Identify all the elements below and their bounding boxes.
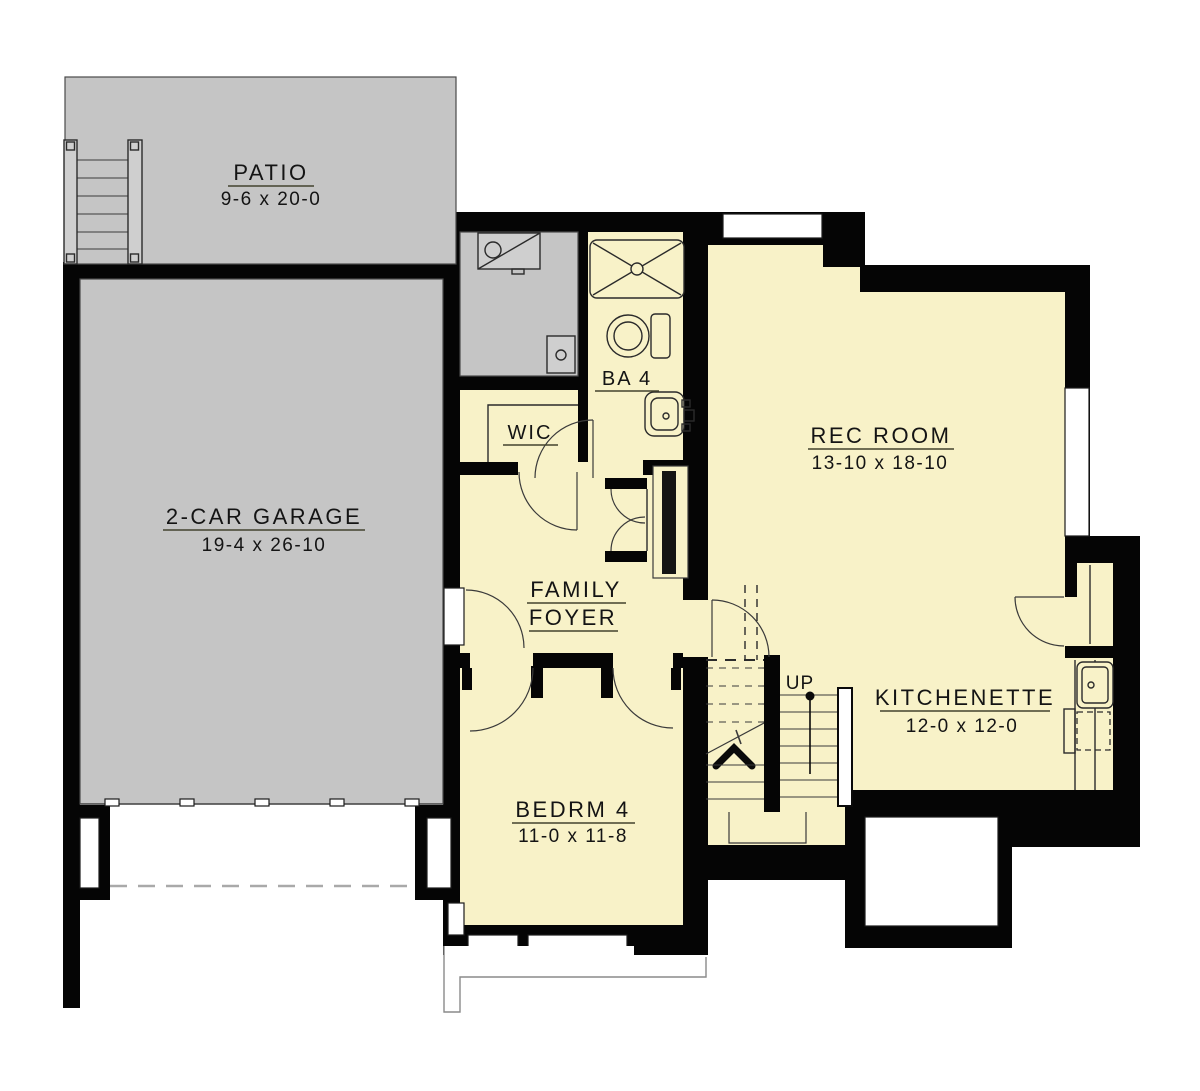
linen-closet xyxy=(647,466,688,578)
kitchenette-label: KITCHENETTE xyxy=(875,685,1055,710)
rec-room-area xyxy=(708,245,1065,845)
floor-plan-drawing: PATIO 9-6 x 20-0 2-CAR GARAGE 19-4 x 26-… xyxy=(0,0,1200,1091)
patio-label: PATIO xyxy=(233,160,308,185)
toilet-icon xyxy=(607,314,670,358)
understair-closet-area xyxy=(1077,563,1113,646)
family-foyer-label-line2: FOYER xyxy=(529,605,617,630)
garage-dims: 19-4 x 26-10 xyxy=(202,535,327,556)
garage-pillar-notch-right xyxy=(427,818,451,888)
rec-room-dims: 13-10 x 18-10 xyxy=(812,453,949,474)
bedroom-side-window xyxy=(448,903,464,935)
shower-icon xyxy=(590,240,684,298)
garage-entry-door-leaf xyxy=(444,588,464,645)
garage-label: 2-CAR GARAGE xyxy=(166,504,362,529)
garage-pillar-notch-left xyxy=(80,818,99,888)
kitchen-sink-icon xyxy=(1077,662,1113,708)
family-foyer-label-line1: FAMILY xyxy=(530,577,622,602)
rec-room-top-window xyxy=(723,214,822,238)
rec-room-label: REC ROOM xyxy=(811,423,952,448)
stair-railing xyxy=(838,688,852,806)
window-well xyxy=(865,817,998,926)
stair-rail-left xyxy=(64,140,77,264)
water-heater-icon xyxy=(547,336,575,373)
stair-rail-right xyxy=(128,140,142,264)
bedroom4-label: BEDRM 4 xyxy=(515,797,630,822)
bedroom4-dims: 11-0 x 11-8 xyxy=(518,826,628,847)
furnace-icon xyxy=(478,233,540,274)
stairs-up-label: UP xyxy=(786,673,814,694)
patio-dims: 9-6 x 20-0 xyxy=(221,189,322,210)
wic-label: WIC xyxy=(508,422,553,444)
bath4-label: BA 4 xyxy=(602,368,652,390)
floor-plan-page: PATIO 9-6 x 20-0 2-CAR GARAGE 19-4 x 26-… xyxy=(0,0,1200,1091)
kitchenette-dims: 12-0 x 12-0 xyxy=(906,716,1019,737)
rec-room-right-window xyxy=(1065,388,1089,536)
